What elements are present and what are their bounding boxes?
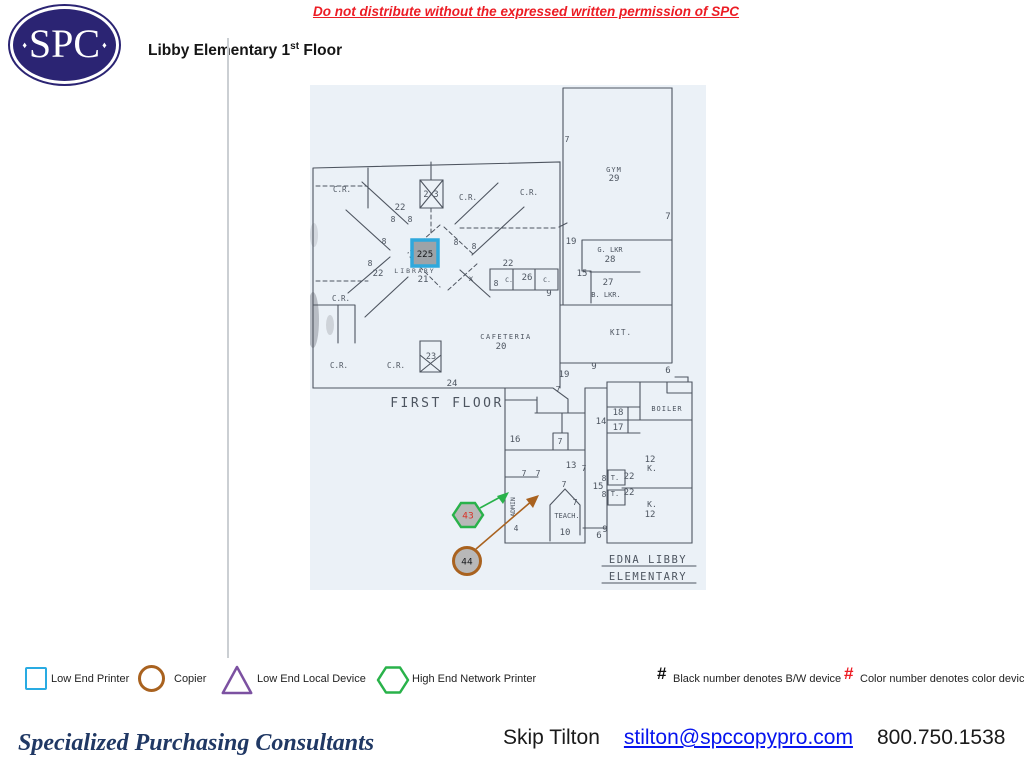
- plan-room-label: 13: [566, 461, 577, 471]
- first-floor-caption: FIRST FLOOR: [390, 396, 504, 411]
- plan-room-label: 19: [566, 237, 577, 247]
- plan-room-label: 7: [562, 480, 567, 489]
- legend-bar: Low End Printer Copier Low End Local Dev…: [0, 660, 1024, 700]
- page-title-rest: Floor: [299, 42, 342, 59]
- plan-room-label: C.R.: [332, 294, 350, 303]
- plan-room-label: 27: [603, 278, 614, 288]
- school-name-line2: ELEMENTARY: [609, 571, 687, 583]
- plan-room-label: BOILER: [651, 405, 682, 413]
- slide-page: { "header": { "warning": "Do not distrib…: [0, 0, 1024, 764]
- scan-smudge: [310, 223, 318, 247]
- floor-plan-image: 7GYM29719G. LKR281527B. LKR.KIT.9619C.R.…: [310, 85, 710, 590]
- high-end-network-printer-icon: [376, 665, 410, 695]
- plan-room-label: 8: [472, 242, 477, 251]
- plan-room-label: 7: [522, 469, 527, 478]
- plan-room-label: 8: [494, 279, 499, 288]
- logo-diamond-right-icon: ♦: [102, 41, 107, 50]
- color-number-note: Color number denotes color device: [860, 673, 1024, 685]
- vertical-divider: [227, 38, 229, 658]
- distribution-warning: Do not distribute without the expressed …: [283, 4, 769, 19]
- plan-room-label: G. LKR: [597, 246, 623, 254]
- plan-room-label: T.: [611, 474, 619, 482]
- plan-room-label: 20: [496, 342, 507, 352]
- plan-room-label: 9: [546, 289, 551, 299]
- scan-smudge: [326, 315, 334, 335]
- marker-43-hexagon[interactable]: 43: [453, 503, 483, 527]
- plan-room-label: 26: [522, 273, 533, 283]
- plan-room-label: 22: [373, 269, 384, 279]
- plan-room-label: 22: [395, 203, 406, 213]
- plan-room-label: 9: [602, 525, 607, 535]
- plan-room-label: 7: [573, 498, 578, 507]
- plan-room-label: 8: [602, 490, 607, 499]
- plan-room-label: 8: [454, 238, 459, 247]
- page-title-sup: st: [290, 41, 299, 52]
- legend-low-end-local-device-label: Low End Local Device: [257, 673, 366, 685]
- plan-room-label: 24: [447, 379, 458, 389]
- plan-room-label: 6: [596, 531, 601, 541]
- page-title-text: Libby Elementary 1: [148, 42, 290, 59]
- plan-room-label: 8: [408, 215, 413, 224]
- plan-room-label: 7: [665, 212, 670, 222]
- low-end-printer-icon: [25, 667, 47, 690]
- school-name-line1: EDNA LIBBY: [609, 554, 687, 566]
- black-number-hash-symbol: #: [657, 664, 666, 684]
- plan-room-label: 23: [426, 352, 436, 362]
- plan-room-label: 12: [645, 510, 656, 520]
- copier-icon: [138, 665, 165, 692]
- plan-room-label: K.: [647, 464, 657, 473]
- plan-room-label: 7: [582, 464, 587, 473]
- spc-logo-oval: ♦ SPC ♦: [13, 9, 116, 81]
- contact-name: Skip Tilton: [503, 726, 600, 750]
- highlight-device-225[interactable]: 225: [412, 240, 438, 266]
- plan-room-label: C.: [543, 276, 551, 284]
- plan-room-label: 29: [609, 174, 620, 184]
- spc-logo: ♦ SPC ♦: [8, 4, 121, 86]
- marker-43-number: 43: [462, 512, 473, 522]
- plan-room-label: 19: [559, 370, 570, 380]
- plan-room-label: 8: [382, 237, 387, 246]
- plan-room-label: 17: [613, 423, 624, 433]
- plan-room-label: 22: [624, 472, 635, 482]
- plan-room-label: C.R.: [333, 185, 351, 194]
- plan-room-label: CAFETERIA: [480, 333, 531, 341]
- plan-room-label: GYM: [606, 166, 622, 174]
- plan-room-label: TEACH.: [554, 512, 579, 520]
- plan-room-label: 8: [368, 259, 373, 268]
- plan-room-label: C.: [505, 276, 513, 284]
- plan-room-label: 14: [596, 417, 607, 427]
- plan-room-label: 10: [560, 528, 571, 538]
- marker-44-number: 44: [461, 558, 473, 568]
- highlight-device-label: 225: [417, 250, 433, 260]
- plan-room-label: 15: [577, 269, 588, 279]
- contact-phone: 800.750.1538: [877, 726, 1005, 750]
- plan-room-label: 7: [558, 437, 563, 446]
- plan-room-label: LIBRARY: [394, 267, 435, 275]
- plan-room-label: 22: [503, 259, 514, 269]
- logo-diamond-left-icon: ♦: [22, 41, 27, 50]
- plan-room-label: 18: [613, 408, 624, 418]
- contact-row: Skip Tilton stilton@spccopypro.com 800.7…: [503, 726, 1005, 750]
- plan-room-label: 28: [605, 255, 616, 265]
- marker-44-circle[interactable]: 44: [454, 548, 481, 575]
- plan-room-label: 9: [591, 362, 596, 372]
- plan-room-label: 22: [624, 488, 635, 498]
- plan-room-label: T.: [611, 490, 619, 498]
- page-title: Libby Elementary 1st Floor: [148, 41, 342, 60]
- plan-room-label: C.R.: [330, 361, 348, 370]
- black-number-note: Black number denotes B/W device: [673, 673, 841, 685]
- plan-room-label: 8: [391, 215, 396, 224]
- legend-copier-label: Copier: [174, 673, 206, 685]
- plan-room-label: 7: [536, 469, 541, 478]
- logo-text: SPC: [29, 24, 100, 64]
- plan-room-label: K.: [647, 500, 657, 509]
- plan-room-label: 16: [510, 435, 521, 445]
- plan-room-label: C.R.: [520, 188, 538, 197]
- legend-low-end-printer-label: Low End Printer: [51, 673, 129, 685]
- plan-room-label: 7: [565, 135, 570, 144]
- low-end-local-device-icon: [221, 665, 254, 695]
- plan-room-label: B. LKR.: [591, 291, 621, 299]
- plan-room-label: 7: [556, 385, 561, 394]
- plan-room-label: x: [469, 274, 474, 283]
- plan-room-label: C.R.: [459, 193, 477, 202]
- contact-email-link[interactable]: stilton@spccopypro.com: [624, 726, 853, 750]
- plan-room-label: C.R.: [387, 361, 405, 370]
- plan-room-label: 4: [514, 524, 519, 533]
- plan-room-label: 2-3: [423, 190, 438, 200]
- plan-room-label: KIT.: [610, 328, 632, 337]
- company-name: Specialized Purchasing Consultants: [18, 730, 374, 757]
- plan-room-label: 21: [418, 275, 429, 285]
- color-number-hash-symbol: #: [844, 664, 853, 684]
- plan-room-label: 6: [665, 366, 670, 376]
- legend-high-end-network-printer-label: High End Network Printer: [412, 673, 536, 685]
